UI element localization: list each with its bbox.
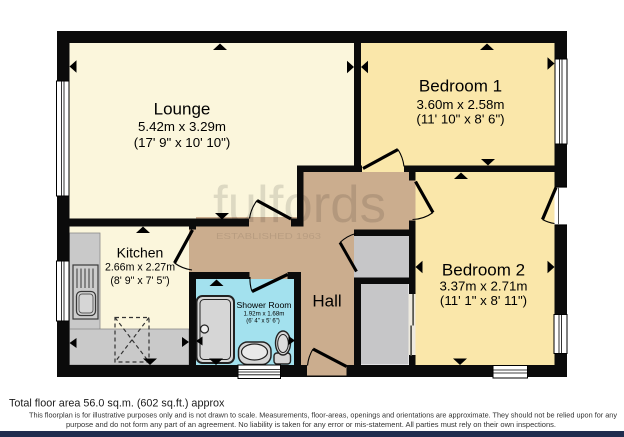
- svg-text:1.92m x 1.68m: 1.92m x 1.68m: [244, 311, 285, 318]
- svg-text:3.60m x 2.58m: 3.60m x 2.58m: [417, 97, 505, 112]
- svg-text:This floorplan is for illustra: This floorplan is for illustrative purpo…: [29, 411, 617, 420]
- svg-text:3.37m x 2.71m: 3.37m x 2.71m: [440, 279, 528, 294]
- svg-text:Lounge: Lounge: [154, 100, 211, 119]
- svg-text:ESTABLISHED 1963: ESTABLISHED 1963: [216, 231, 321, 241]
- svg-text:(6' 4" x 5' 6"): (6' 4" x 5' 6"): [246, 319, 280, 325]
- svg-text:2.66m x 2.27m: 2.66m x 2.27m: [105, 262, 175, 274]
- svg-text:(8' 9" x 7' 5"): (8' 9" x 7' 5"): [110, 275, 169, 287]
- svg-text:Total floor area 56.0 sq.m. (6: Total floor area 56.0 sq.m. (602 sq.ft.)…: [9, 398, 225, 410]
- svg-text:Hall: Hall: [312, 292, 341, 311]
- svg-text:(11' 1" x 8' 11"): (11' 1" x 8' 11"): [440, 293, 527, 308]
- svg-text:Bedroom 1: Bedroom 1: [419, 77, 502, 96]
- svg-text:purpose and do not form any pa: purpose and do not form any part of an a…: [66, 420, 556, 429]
- svg-text:Bedroom 2: Bedroom 2: [442, 261, 525, 280]
- svg-text:(17' 9" x 10' 10"): (17' 9" x 10' 10"): [134, 135, 231, 150]
- svg-text:Kitchen: Kitchen: [117, 245, 164, 261]
- svg-text:Shower Room: Shower Room: [236, 300, 291, 310]
- svg-text:5.42m x 3.29m: 5.42m x 3.29m: [138, 119, 226, 134]
- svg-text:(11' 10" x 8' 6"): (11' 10" x 8' 6"): [416, 112, 504, 127]
